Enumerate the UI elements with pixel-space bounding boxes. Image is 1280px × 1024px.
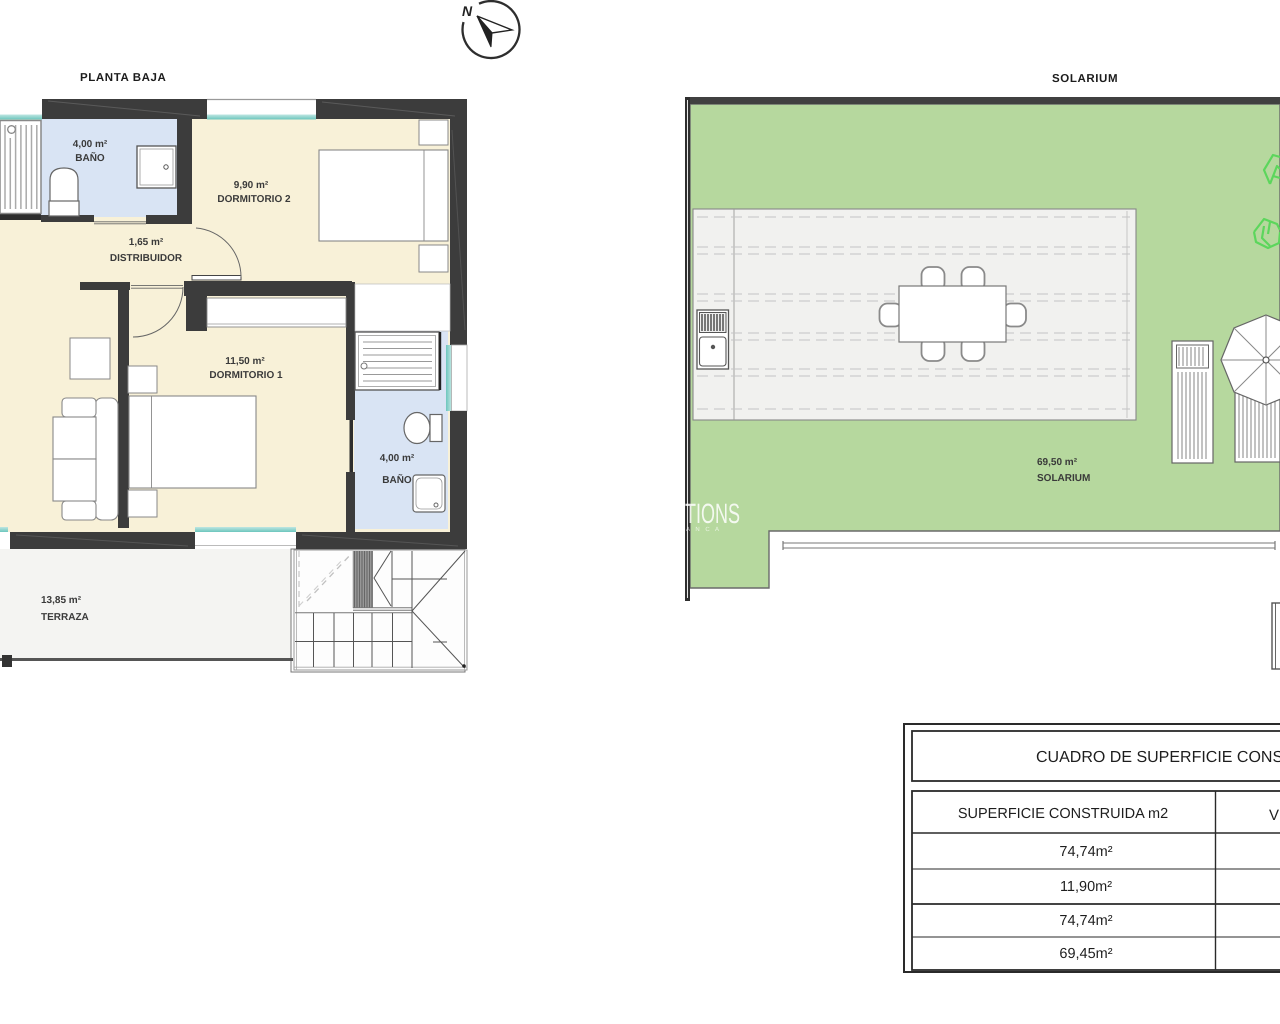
svg-text:9,90 m²: 9,90 m²	[234, 180, 269, 191]
svg-text:4,00 m²: 4,00 m²	[73, 139, 108, 150]
svg-text:4,00 m²: 4,00 m²	[380, 453, 415, 464]
svg-text:11,50 m²: 11,50 m²	[225, 356, 265, 367]
svg-text:DORMITORIO 2: DORMITORIO 2	[217, 194, 291, 205]
svg-text:11,90m²: 11,90m²	[1060, 879, 1112, 895]
svg-text:SUPERFICIE CONSTRUIDA m2: SUPERFICIE CONSTRUIDA m2	[958, 806, 1168, 822]
svg-text:SOLARIUM: SOLARIUM	[1037, 473, 1090, 484]
svg-text:69,50 m²: 69,50 m²	[1037, 457, 1078, 468]
svg-text:BAÑO: BAÑO	[382, 474, 412, 486]
svg-text:TERRAZA: TERRAZA	[41, 612, 89, 623]
svg-text:69,45m²: 69,45m²	[1059, 946, 1112, 962]
svg-text:TIONS: TIONS	[685, 498, 740, 529]
svg-text:74,74m²: 74,74m²	[1059, 913, 1112, 929]
svg-text:N: N	[462, 3, 473, 19]
svg-text:BAÑO: BAÑO	[75, 152, 105, 164]
svg-text:CUADRO DE SUPERFICIE CONSTRUID: CUADRO DE SUPERFICIE CONSTRUIDA	[1036, 749, 1280, 766]
svg-text:1,65 m²: 1,65 m²	[129, 237, 164, 248]
svg-text:A N C A: A N C A	[686, 526, 721, 533]
svg-text:DISTRIBUIDOR: DISTRIBUIDOR	[110, 253, 183, 264]
svg-text:SOLARIUM: SOLARIUM	[1052, 73, 1118, 85]
svg-text:74,74m²: 74,74m²	[1059, 844, 1112, 860]
svg-text:13,85 m²: 13,85 m²	[41, 595, 82, 606]
svg-text:VIVIENDA: VIVIENDA	[1269, 807, 1280, 824]
svg-text:DORMITORIO 1: DORMITORIO 1	[209, 370, 283, 381]
svg-text:PLANTA BAJA: PLANTA BAJA	[80, 72, 166, 84]
